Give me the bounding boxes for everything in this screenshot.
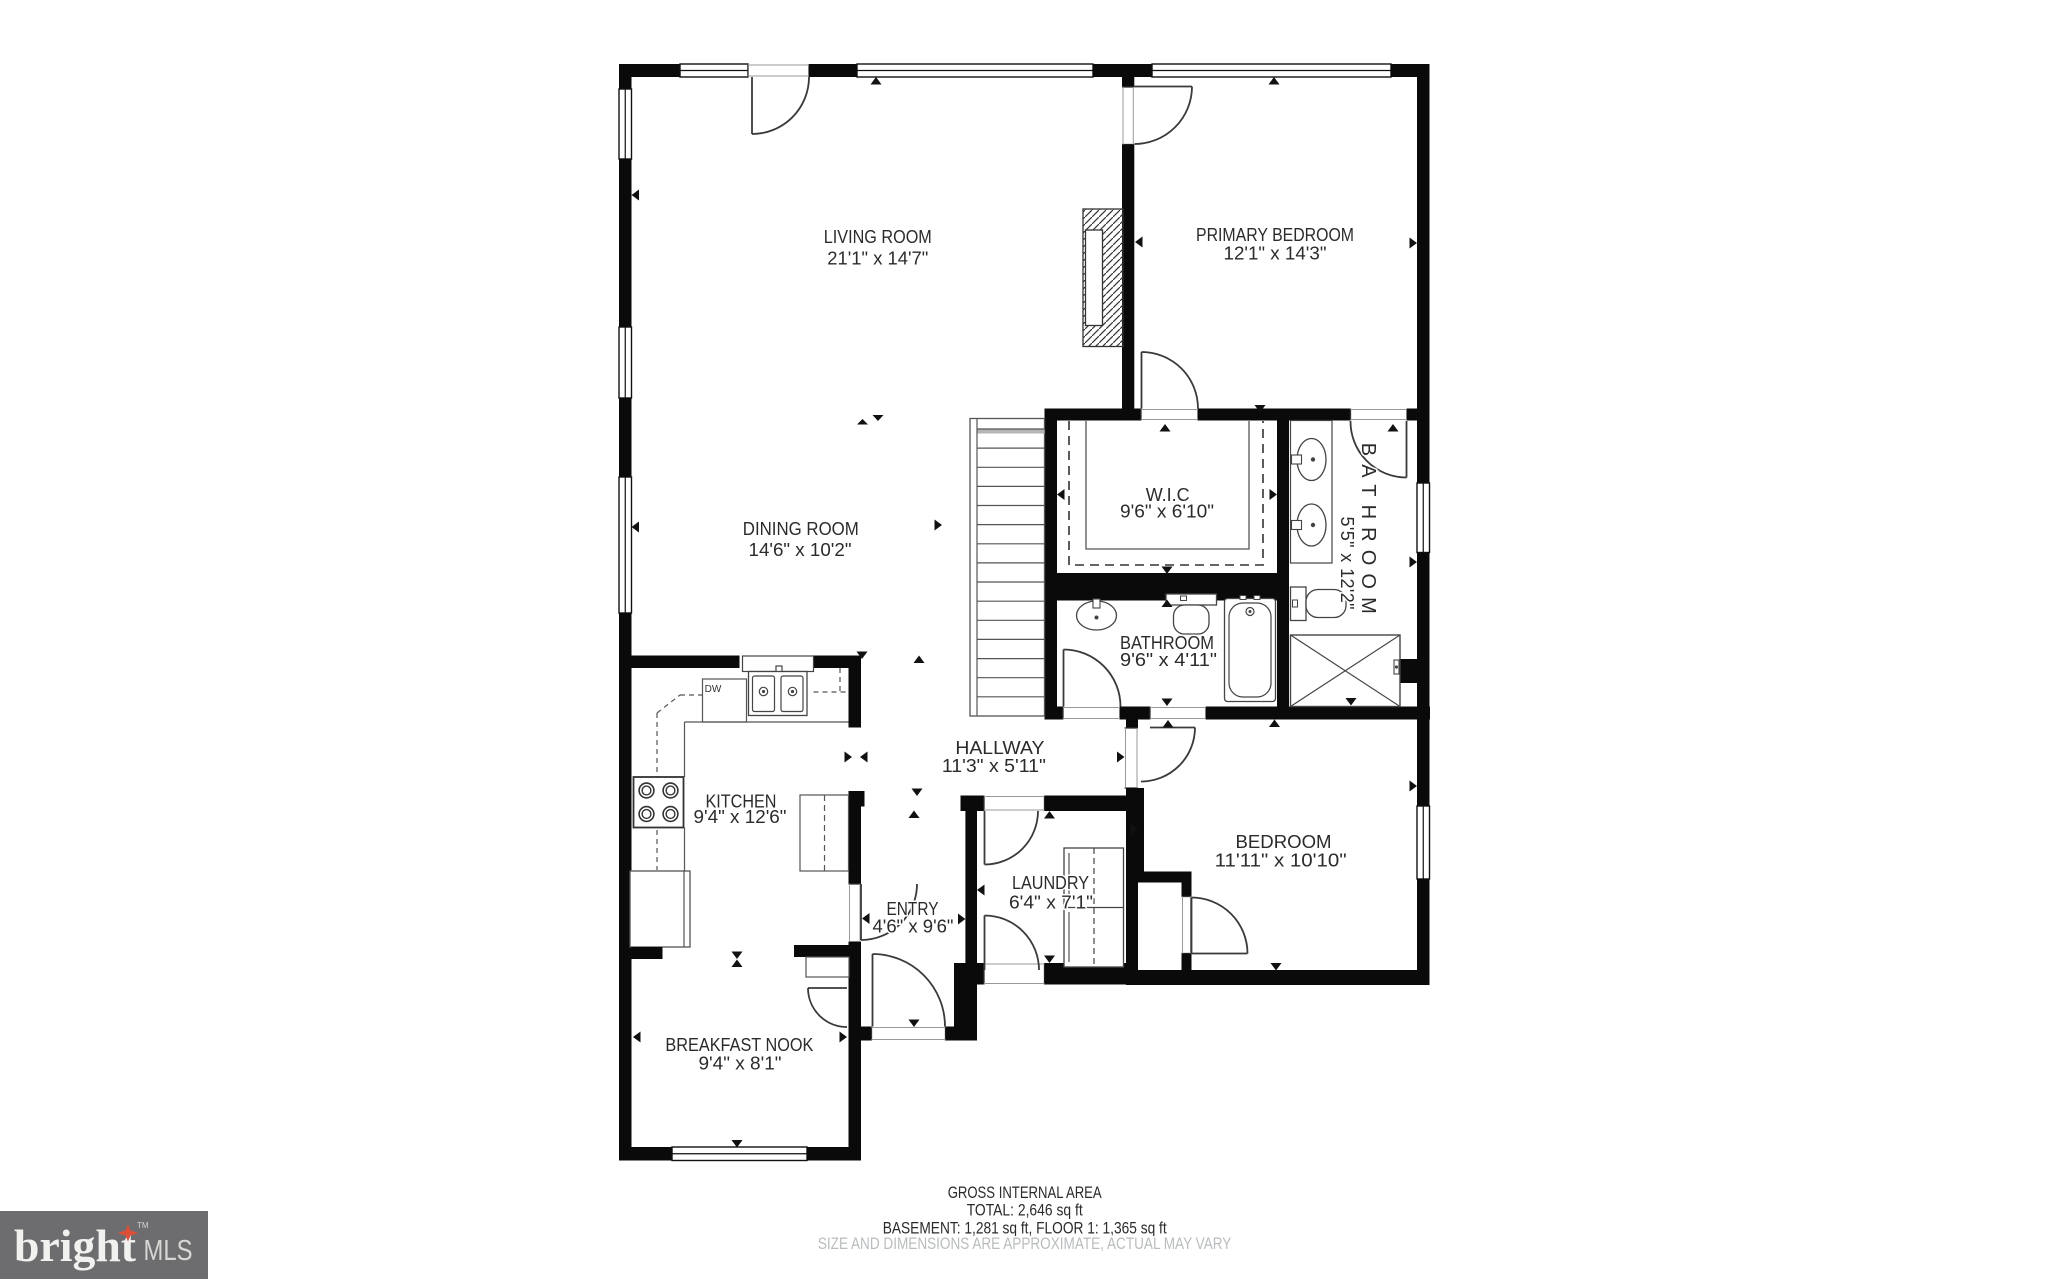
svg-text:14'6" x 10'2": 14'6" x 10'2" bbox=[749, 540, 852, 560]
svg-text:BATHROOM: BATHROOM bbox=[1357, 443, 1379, 614]
svg-text:TM: TM bbox=[137, 1221, 149, 1230]
svg-text:12'1" x 14'3": 12'1" x 14'3" bbox=[1224, 244, 1327, 264]
svg-text:BEDROOM: BEDROOM bbox=[1236, 832, 1332, 852]
svg-text:GROSS INTERNAL AREA: GROSS INTERNAL AREA bbox=[948, 1183, 1102, 1202]
svg-text:9'6" x 4'11": 9'6" x 4'11" bbox=[1120, 650, 1217, 670]
svg-text:5'5" x 12'2": 5'5" x 12'2" bbox=[1337, 517, 1357, 610]
svg-text:11'11" x 10'10": 11'11" x 10'10" bbox=[1215, 851, 1347, 871]
svg-text:SIZE AND DIMENSIONS ARE APPROX: SIZE AND DIMENSIONS ARE APPROXIMATE, ACT… bbox=[818, 1234, 1232, 1253]
svg-text:HALLWAY: HALLWAY bbox=[955, 738, 1044, 758]
svg-text:PRIMARY BEDROOM: PRIMARY BEDROOM bbox=[1196, 225, 1354, 245]
svg-text:LAUNDRY: LAUNDRY bbox=[1012, 873, 1089, 893]
svg-text:9'4" x 8'1": 9'4" x 8'1" bbox=[699, 1054, 782, 1074]
svg-text:9'6" x 6'10": 9'6" x 6'10" bbox=[1120, 502, 1214, 522]
svg-text:BREAKFAST NOOK: BREAKFAST NOOK bbox=[665, 1035, 813, 1055]
svg-text:DINING ROOM: DINING ROOM bbox=[743, 519, 859, 539]
svg-text:bright: bright bbox=[14, 1221, 136, 1271]
svg-text:4'6" x 9'6": 4'6" x 9'6" bbox=[873, 917, 954, 937]
svg-text:TOTAL: 2,646 sq ft: TOTAL: 2,646 sq ft bbox=[967, 1201, 1083, 1220]
svg-text:21'1" x 14'7": 21'1" x 14'7" bbox=[827, 249, 928, 269]
svg-text:6'4" x 7'1": 6'4" x 7'1" bbox=[1009, 893, 1093, 913]
svg-text:MLS: MLS bbox=[144, 1235, 193, 1267]
svg-text:9'4" x 12'6": 9'4" x 12'6" bbox=[694, 807, 787, 827]
svg-text:DW: DW bbox=[705, 684, 722, 695]
svg-text:LIVING ROOM: LIVING ROOM bbox=[824, 227, 932, 247]
svg-text:11'3" x 5'11": 11'3" x 5'11" bbox=[942, 756, 1046, 776]
